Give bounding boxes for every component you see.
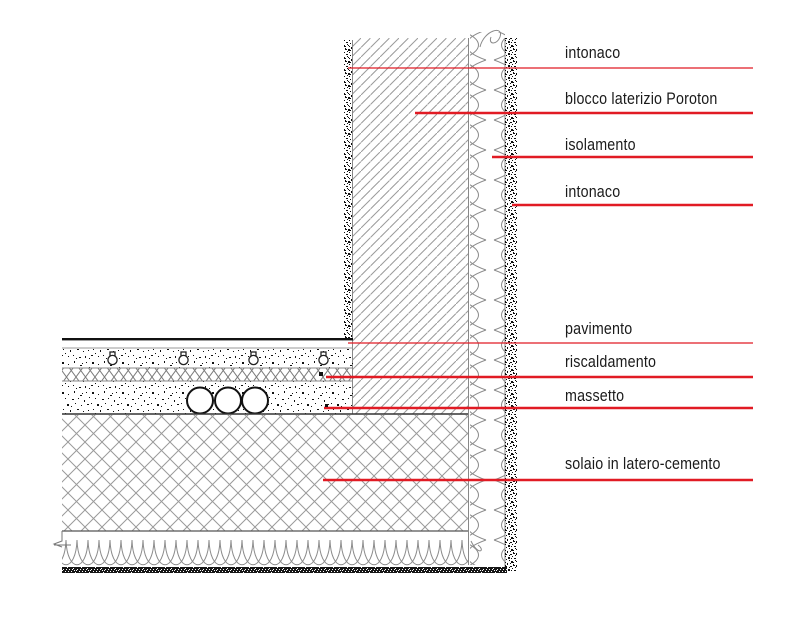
floor-solaio-slab (62, 415, 468, 531)
ceiling-plaster-strip (62, 567, 507, 573)
wall-intonaco-interior-band (344, 40, 352, 339)
leader-start-marker-riscaldamento (319, 372, 323, 376)
label-riscaldamento: riscaldamento (565, 353, 656, 370)
conduit-pipes-large (187, 388, 268, 414)
label-pavimento: pavimento (565, 320, 632, 337)
construction-detail-page: intonaco blocco laterizio Poroton isolam… (0, 0, 800, 622)
wall-intonaco-exterior-band (505, 38, 517, 572)
label-blocco-laterizio-poroton: blocco laterizio Poroton (565, 90, 717, 107)
floor-pavimento-line (62, 338, 353, 340)
label-intonaco-exterior: intonaco (565, 183, 620, 200)
wall-poroton-block (353, 38, 468, 414)
leader-start-marker-massetto (325, 404, 328, 407)
floor-underlay-band (62, 369, 353, 382)
label-massetto: massetto (565, 387, 624, 404)
floor-riscaldamento-band (62, 349, 353, 368)
label-intonaco-interior: intonaco (565, 44, 620, 61)
label-solaio-latero-cemento: solaio in latero-cemento (565, 455, 721, 472)
ceiling-batt-band (62, 532, 468, 567)
label-isolamento: isolamento (565, 136, 636, 153)
